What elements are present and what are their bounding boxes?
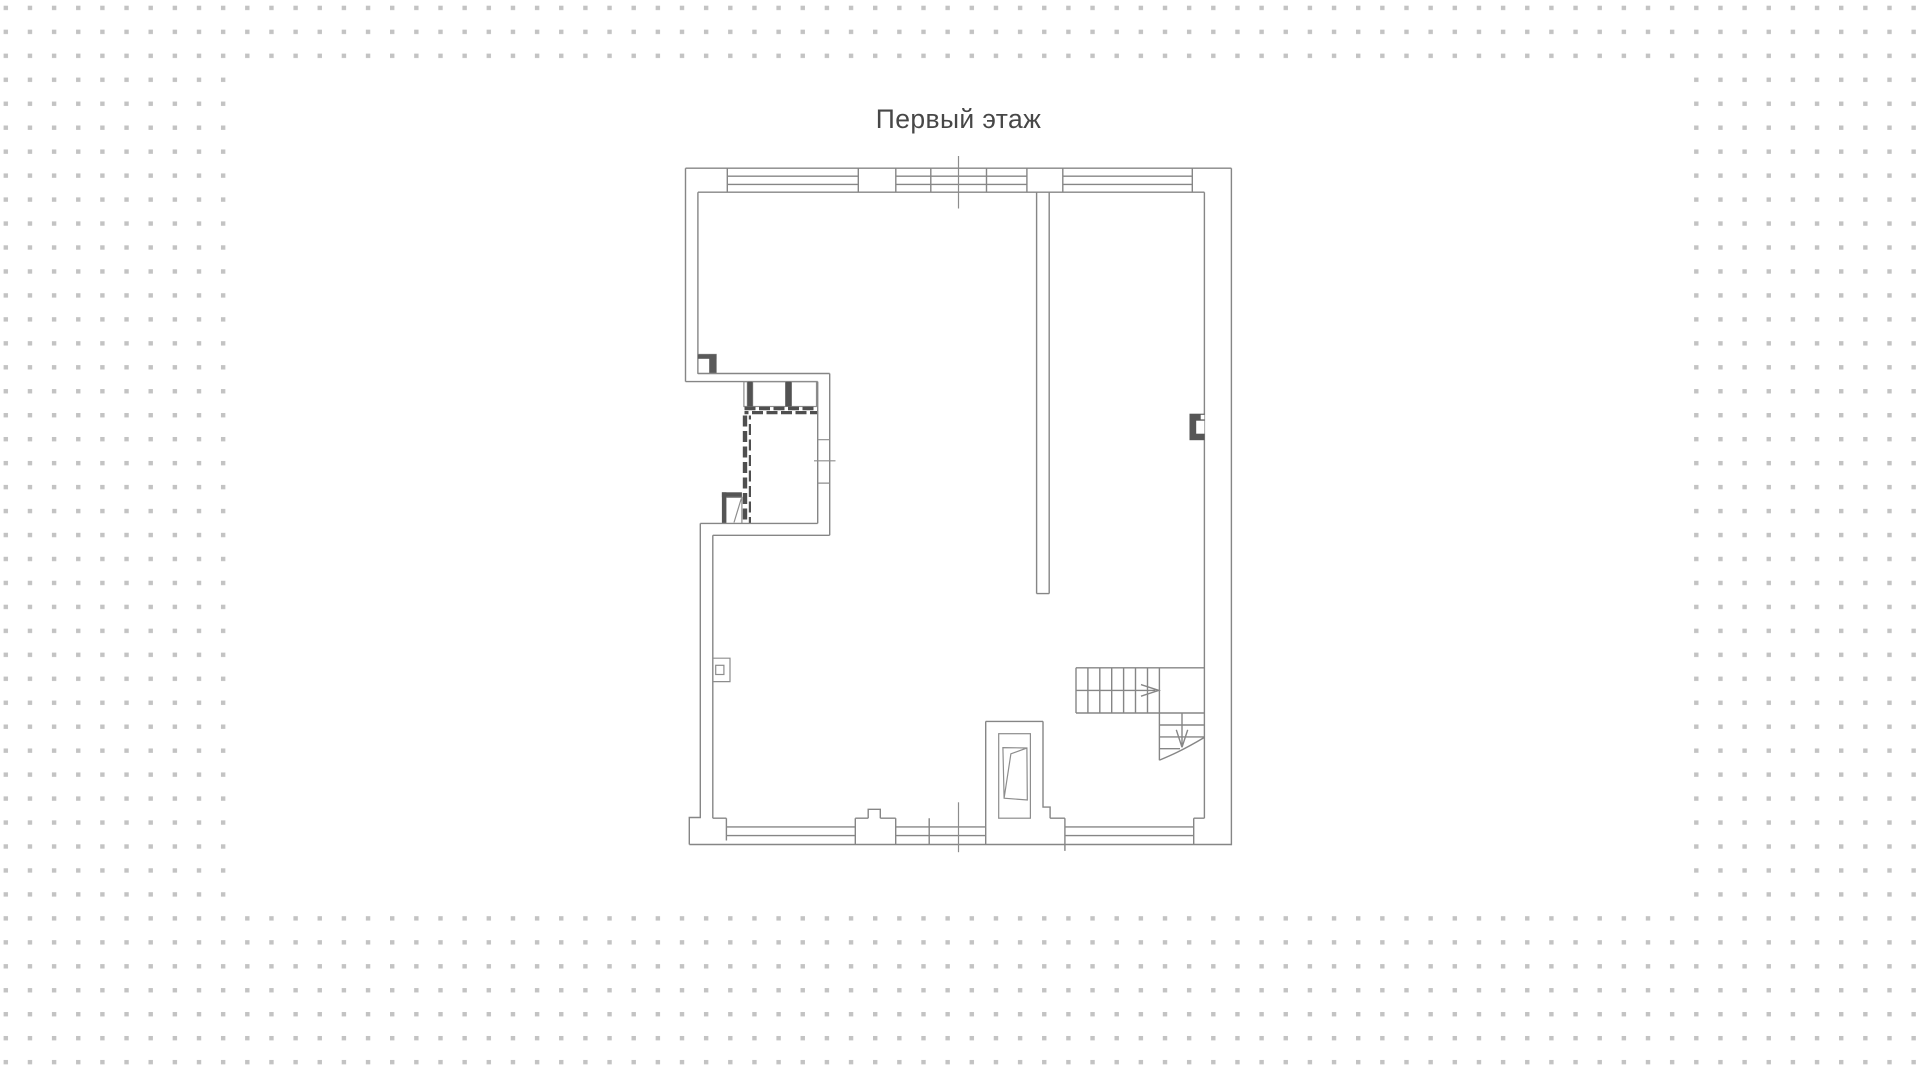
svg-text:Первый этаж: Первый этаж — [876, 104, 1041, 134]
